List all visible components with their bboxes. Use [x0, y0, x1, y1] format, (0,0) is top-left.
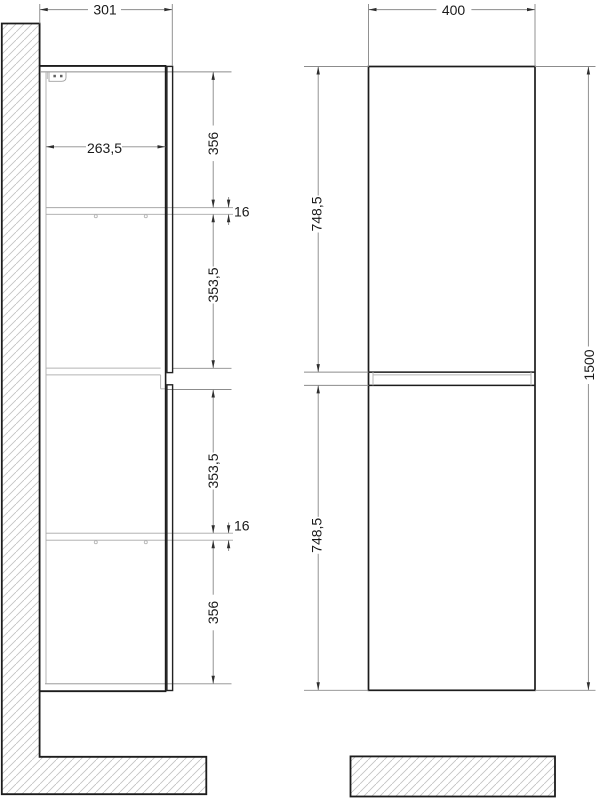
- svg-text:748,5: 748,5: [308, 196, 324, 231]
- svg-text:353,5: 353,5: [205, 267, 221, 302]
- svg-text:301: 301: [93, 2, 117, 18]
- svg-text:353,5: 353,5: [205, 453, 221, 488]
- svg-text:356: 356: [205, 132, 221, 156]
- svg-text:748,5: 748,5: [308, 518, 324, 553]
- svg-text:400: 400: [442, 2, 466, 18]
- svg-text:356: 356: [205, 601, 221, 625]
- svg-text:16: 16: [234, 204, 250, 220]
- svg-text:1500: 1500: [581, 349, 597, 380]
- svg-text:263,5: 263,5: [87, 140, 122, 156]
- svg-text:16: 16: [234, 518, 250, 534]
